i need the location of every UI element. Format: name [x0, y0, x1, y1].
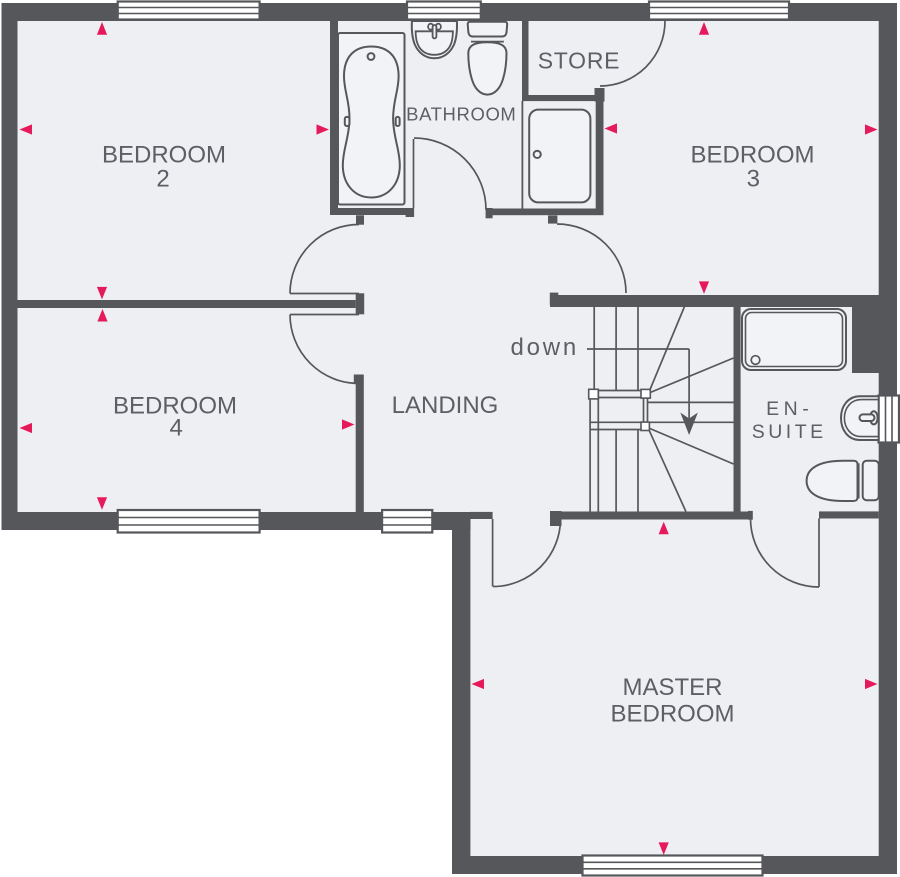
svg-text:STORE: STORE	[538, 47, 621, 73]
svg-text:4: 4	[170, 414, 183, 441]
svg-text:3: 3	[747, 166, 760, 193]
svg-text:BATHROOM: BATHROOM	[406, 104, 516, 125]
svg-text:BEDROOM: BEDROOM	[610, 701, 734, 728]
svg-text:down: down	[511, 334, 580, 361]
svg-text:MASTER: MASTER	[622, 674, 722, 701]
svg-text:EN-: EN-	[766, 398, 813, 420]
svg-text:SUITE: SUITE	[752, 421, 827, 443]
svg-text:LANDING: LANDING	[392, 392, 499, 419]
svg-text:2: 2	[156, 165, 169, 192]
svg-text:BEDROOM: BEDROOM	[690, 141, 814, 168]
